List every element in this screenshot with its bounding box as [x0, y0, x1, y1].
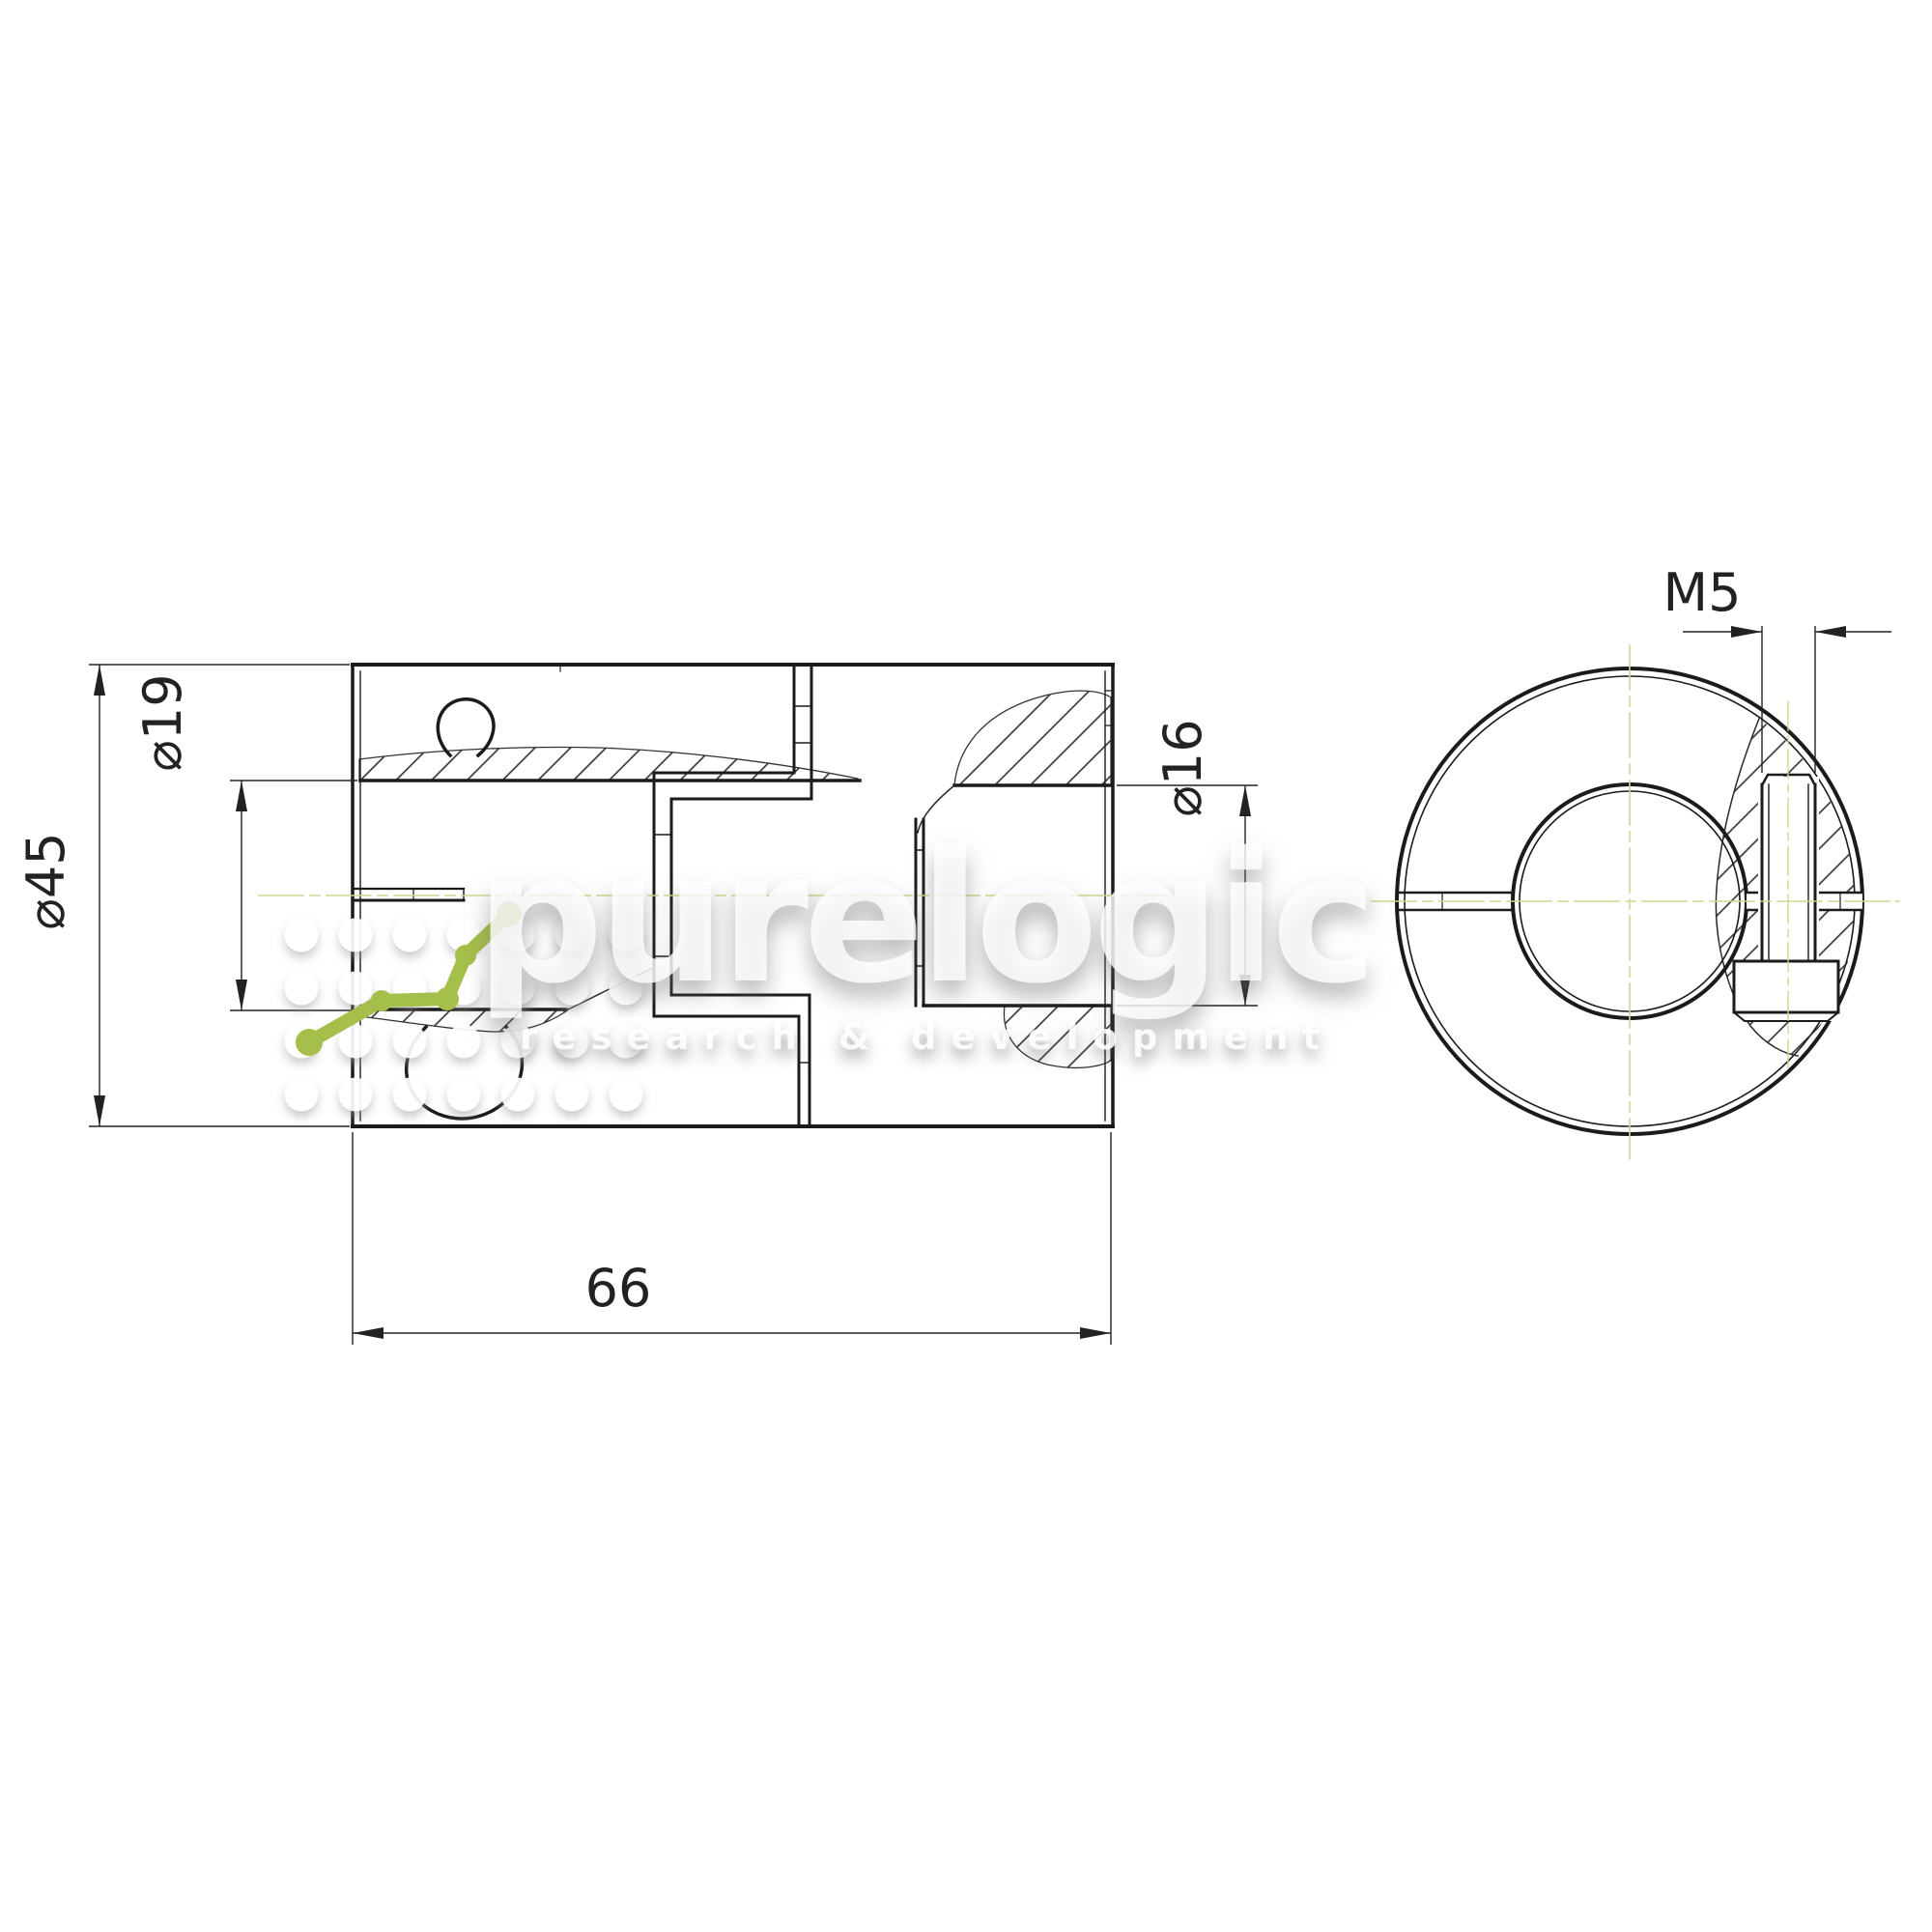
set-screw-hole-bottom [407, 1027, 523, 1119]
drawing-canvas: ⌀45 ⌀19 ⌀16 66 [0, 0, 1932, 1932]
breakout-curves [564, 785, 954, 1011]
section-hatching [359, 691, 1111, 1067]
dim-bore-right-label: ⌀16 [1152, 719, 1213, 816]
set-screw-hole-top [438, 699, 494, 755]
dim-outer-diameter-label: ⌀45 [15, 832, 76, 929]
side-section-view [259, 665, 1167, 1126]
dim-bore-right: ⌀16 [1117, 719, 1258, 1006]
dim-overall-length-label: 66 [585, 1258, 652, 1319]
technical-drawing: ⌀45 ⌀19 ⌀16 66 [0, 0, 1932, 1932]
dim-bore-left-label: ⌀19 [132, 673, 193, 771]
dimensions: ⌀45 ⌀19 ⌀16 66 [15, 562, 1891, 1345]
dim-overall-length: 66 [353, 1132, 1111, 1345]
dim-set-screw-label: M5 [1663, 562, 1742, 623]
end-view [1372, 645, 1899, 1159]
dim-bore-left: ⌀19 [132, 673, 357, 1010]
clamp-slit-side [353, 889, 464, 900]
